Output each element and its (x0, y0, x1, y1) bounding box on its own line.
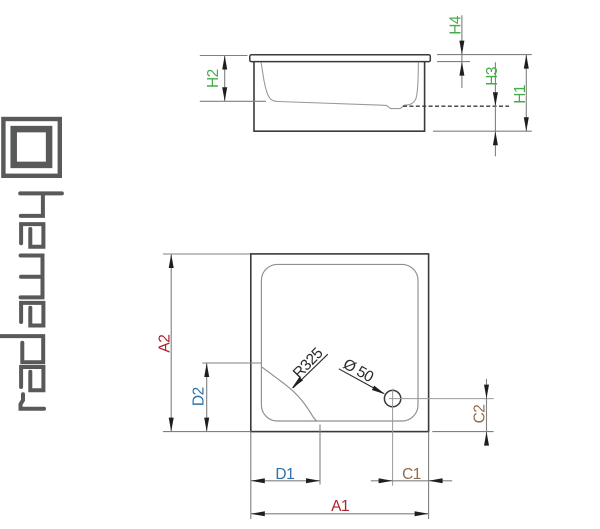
svg-text:A2: A2 (156, 335, 173, 353)
svg-text:D1: D1 (275, 466, 294, 483)
svg-text:A1: A1 (331, 498, 349, 515)
svg-text:H3: H3 (484, 67, 501, 86)
svg-text:C1: C1 (402, 466, 421, 483)
svg-text:H2: H2 (205, 69, 222, 88)
svg-text:C2: C2 (472, 405, 489, 424)
svg-text:H1: H1 (512, 85, 529, 104)
svg-text:D2: D2 (190, 387, 207, 406)
svg-text:H4: H4 (448, 15, 465, 35)
